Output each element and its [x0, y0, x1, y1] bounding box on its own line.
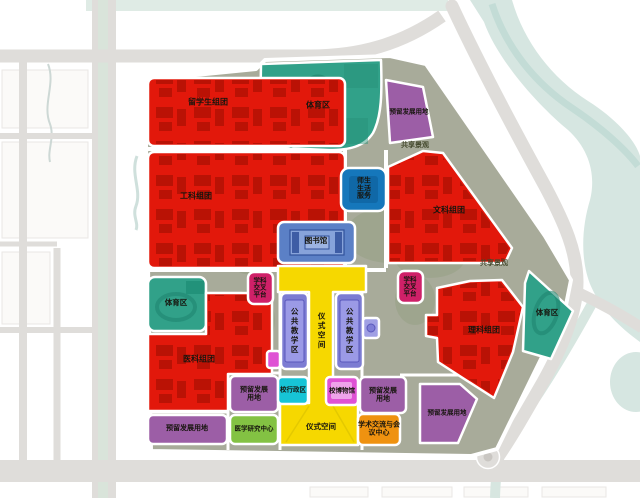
zone-academic-exchange [358, 414, 400, 445]
library-building [290, 230, 344, 255]
life-services-building [349, 176, 378, 203]
campus-master-plan: 留学生组团 体育区 预留发展用地 共享景观 工科组团 师生生活服务 文科组团 图… [0, 0, 640, 498]
map-canvas [0, 0, 640, 498]
museum-annex [267, 351, 280, 368]
zone-reserved-midwest [230, 376, 278, 412]
museum-building [331, 382, 352, 399]
zone-interdisciplinary-east [398, 271, 423, 303]
zone-medical-research [230, 415, 278, 444]
zone-interdisciplinary-west [248, 272, 273, 304]
zone-reserved-southwest [148, 415, 227, 444]
zone-admin [278, 377, 308, 404]
zone-reserved-midsouth [360, 377, 406, 413]
